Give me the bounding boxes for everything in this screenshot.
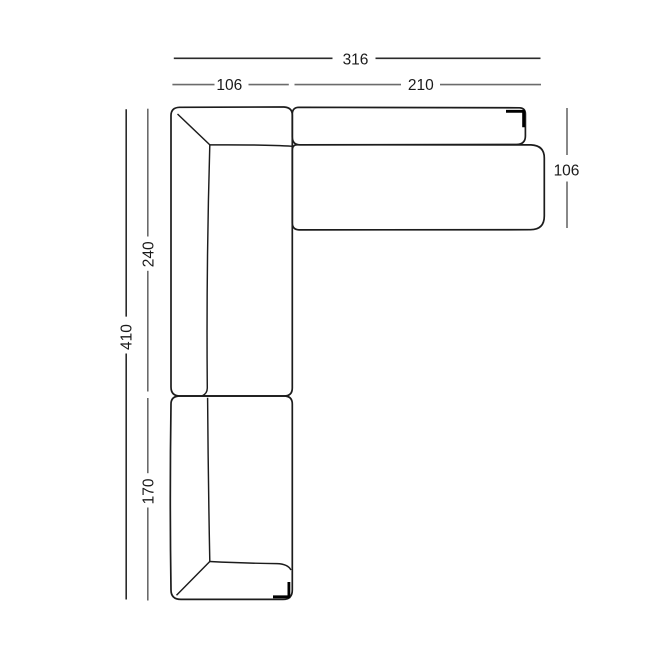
- svg-text:106: 106: [216, 77, 242, 94]
- svg-text:210: 210: [408, 77, 434, 94]
- svg-text:170: 170: [140, 478, 157, 504]
- svg-text:316: 316: [343, 51, 369, 68]
- svg-text:240: 240: [140, 241, 157, 267]
- svg-text:106: 106: [554, 163, 580, 180]
- svg-text:410: 410: [118, 324, 135, 350]
